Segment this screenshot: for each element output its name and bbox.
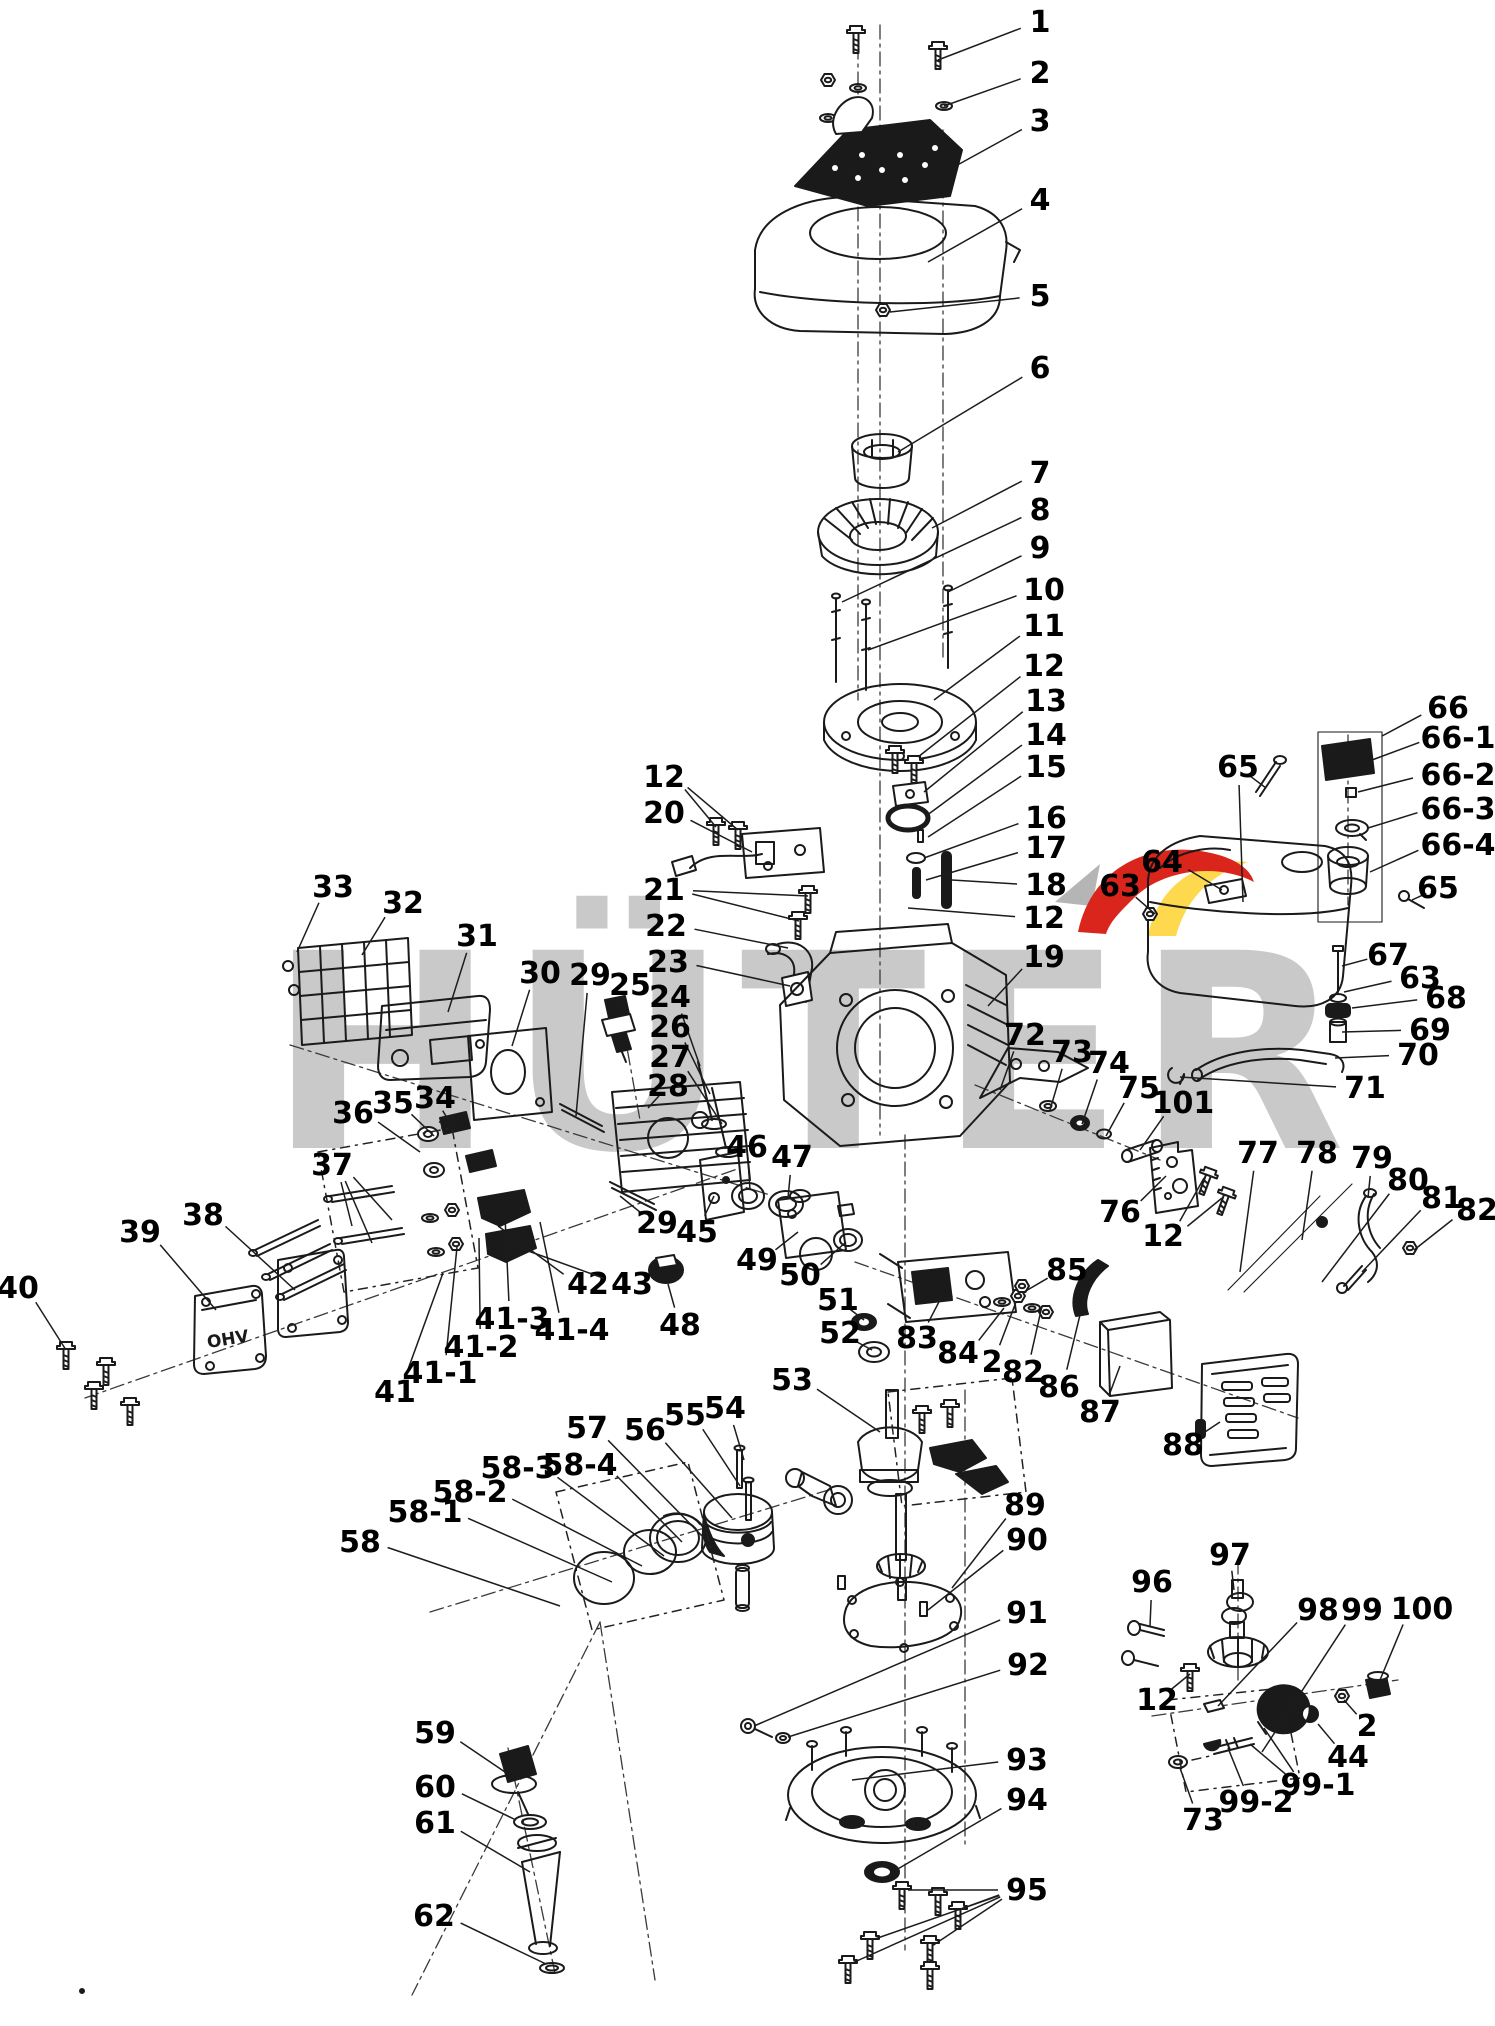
flywheel-nut bbox=[876, 304, 890, 316]
leader-line-95 bbox=[850, 1897, 1000, 1964]
connecting-rod bbox=[786, 1469, 852, 1514]
leader-line-66-1 bbox=[1372, 742, 1419, 760]
callout-82: 82 bbox=[1456, 1193, 1495, 1228]
callout-17: 17 bbox=[1025, 831, 1067, 866]
callout-46: 46 bbox=[726, 1130, 768, 1165]
flywheel-fan bbox=[818, 499, 938, 574]
leader-line-56 bbox=[665, 1443, 732, 1518]
callout-22: 22 bbox=[645, 909, 687, 944]
leader-line-17 bbox=[926, 853, 1018, 880]
callout-34: 34 bbox=[414, 1081, 456, 1116]
ignition-coil-bracket bbox=[672, 828, 824, 878]
callout-51: 51 bbox=[817, 1283, 859, 1318]
leader-line-6 bbox=[898, 377, 1022, 452]
callout-64: 64 bbox=[1141, 845, 1183, 880]
callout-14: 14 bbox=[1025, 718, 1067, 753]
callout-95: 95 bbox=[1006, 1873, 1048, 1908]
leader-line-100 bbox=[1380, 1624, 1403, 1680]
callout-2: 2 bbox=[982, 1345, 1003, 1380]
callout-70: 70 bbox=[1397, 1038, 1439, 1073]
leader-line-14 bbox=[926, 745, 1022, 816]
callout-53: 53 bbox=[771, 1363, 813, 1398]
callout-101: 101 bbox=[1152, 1086, 1215, 1121]
leader-line-40 bbox=[36, 1302, 66, 1350]
leader-line-73 bbox=[1180, 1768, 1193, 1804]
callout-99: 99 bbox=[1341, 1593, 1383, 1628]
callout-12: 12 bbox=[1136, 1683, 1178, 1718]
callout-90: 90 bbox=[1006, 1523, 1048, 1558]
callout-56: 56 bbox=[624, 1413, 666, 1448]
callout-86: 86 bbox=[1038, 1370, 1080, 1405]
callout-62: 62 bbox=[413, 1899, 455, 1934]
case-bolt-washer bbox=[741, 1719, 790, 1743]
callout-97: 97 bbox=[1209, 1538, 1251, 1573]
callout-11: 11 bbox=[1023, 609, 1065, 644]
callout-35: 35 bbox=[372, 1086, 414, 1121]
callout-12: 12 bbox=[1023, 649, 1065, 684]
callout-21: 21 bbox=[643, 873, 685, 908]
leader-line-58 bbox=[388, 1547, 560, 1606]
rocker-subassembly-box bbox=[888, 1378, 1026, 1506]
callout-61: 61 bbox=[414, 1806, 456, 1841]
callout-77: 77 bbox=[1237, 1136, 1279, 1171]
leader-line-48 bbox=[668, 1284, 675, 1308]
callout-89: 89 bbox=[1004, 1488, 1046, 1523]
callout-84: 84 bbox=[937, 1336, 979, 1371]
callout-66-2: 66-2 bbox=[1420, 758, 1495, 793]
exploded-parts-diagram-page: HÜTER bbox=[0, 0, 1495, 2026]
callout-3: 3 bbox=[1030, 104, 1051, 139]
callout-91: 91 bbox=[1006, 1596, 1048, 1631]
leader-line-92 bbox=[788, 1670, 1000, 1737]
carb-gasket bbox=[834, 1229, 862, 1251]
callout-78: 78 bbox=[1296, 1136, 1338, 1171]
callout-50: 50 bbox=[779, 1258, 821, 1293]
head-stud-bolts bbox=[249, 1220, 346, 1300]
leader-line-58-1 bbox=[468, 1518, 612, 1582]
callout-65: 65 bbox=[1417, 871, 1459, 906]
leader-line-99-1 bbox=[1264, 1728, 1294, 1772]
callout-32: 32 bbox=[382, 886, 424, 921]
leader-line-96 bbox=[1150, 1600, 1151, 1626]
callout-5: 5 bbox=[1030, 279, 1051, 314]
callout-60: 60 bbox=[414, 1770, 456, 1805]
leader-line-1 bbox=[938, 28, 1021, 60]
callout-8: 8 bbox=[1030, 493, 1051, 528]
callout-54: 54 bbox=[704, 1391, 746, 1426]
leader-line-54 bbox=[734, 1425, 744, 1460]
callout-13: 13 bbox=[1025, 684, 1067, 719]
leader-line-3 bbox=[952, 129, 1022, 168]
callout-12: 12 bbox=[1023, 901, 1065, 936]
piston-rings-box bbox=[556, 1462, 724, 1630]
leader-line-58-2 bbox=[512, 1499, 642, 1566]
callout-76: 76 bbox=[1099, 1195, 1141, 1230]
leader-line-5 bbox=[890, 298, 1020, 312]
callout-40: 40 bbox=[0, 1271, 39, 1306]
leader-line-21 bbox=[693, 891, 808, 896]
callout-83: 83 bbox=[896, 1321, 938, 1356]
camshaft bbox=[1208, 1580, 1268, 1667]
callout-100: 100 bbox=[1391, 1592, 1454, 1627]
callout-99-2: 99-2 bbox=[1218, 1785, 1293, 1820]
oil-seal-bottom bbox=[865, 1862, 899, 1882]
cylinder-studs-long bbox=[832, 586, 952, 691]
callout-36: 36 bbox=[332, 1096, 374, 1131]
piston-pin bbox=[736, 1565, 749, 1611]
callout-15: 15 bbox=[1025, 750, 1067, 785]
leader-line-66-3 bbox=[1368, 813, 1418, 828]
leader-line-99-2 bbox=[1228, 1748, 1243, 1786]
leader-line-2 bbox=[1344, 1700, 1357, 1714]
callout-58-1: 58-1 bbox=[387, 1495, 462, 1530]
callout-49: 49 bbox=[736, 1243, 778, 1278]
callout-28: 28 bbox=[647, 1069, 689, 1104]
oil-filler-assembly bbox=[492, 1746, 564, 1973]
callout-38: 38 bbox=[182, 1198, 224, 1233]
piston bbox=[702, 1494, 774, 1564]
leader-line-84 bbox=[979, 1308, 1004, 1340]
callout-45: 45 bbox=[676, 1215, 718, 1250]
callout-71: 71 bbox=[1344, 1071, 1386, 1106]
callout-20: 20 bbox=[643, 796, 685, 831]
leader-line-91 bbox=[754, 1620, 1000, 1726]
callout-66-3: 66-3 bbox=[1420, 792, 1495, 827]
leader-line-4 bbox=[928, 209, 1022, 262]
leader-line-58-4 bbox=[617, 1476, 682, 1542]
leader-line-82 bbox=[1414, 1220, 1453, 1250]
callout-52: 52 bbox=[819, 1316, 861, 1351]
air-filter-element bbox=[1100, 1312, 1172, 1396]
callout-23: 23 bbox=[647, 945, 689, 980]
crankcase-cover bbox=[786, 1727, 980, 1843]
leader-line-59 bbox=[460, 1742, 505, 1772]
callout-47: 47 bbox=[771, 1140, 813, 1175]
callout-31: 31 bbox=[456, 919, 498, 954]
callout-98: 98 bbox=[1297, 1593, 1339, 1628]
callout-29: 29 bbox=[636, 1206, 678, 1241]
coil-bolt bbox=[707, 818, 725, 845]
callout-25: 25 bbox=[609, 968, 651, 1003]
leader-line-41-4 bbox=[540, 1222, 559, 1313]
callout-18: 18 bbox=[1025, 868, 1067, 903]
leader-line-66-2 bbox=[1358, 778, 1413, 792]
callout-33: 33 bbox=[312, 870, 354, 905]
callout-94: 94 bbox=[1006, 1783, 1048, 1818]
valve-cover: OHV bbox=[194, 1286, 266, 1374]
air-cleaner-top-cover bbox=[795, 97, 962, 206]
leader-line-7 bbox=[932, 481, 1022, 528]
callout-92: 92 bbox=[1007, 1648, 1049, 1683]
leader-line-16 bbox=[924, 824, 1018, 858]
leader-line-94 bbox=[896, 1808, 1001, 1870]
callout-59: 59 bbox=[414, 1716, 456, 1751]
leader-line-10 bbox=[868, 596, 1017, 650]
leader-line-90 bbox=[928, 1550, 1003, 1610]
leader-line-60 bbox=[462, 1794, 516, 1820]
leader-line-39 bbox=[160, 1245, 216, 1310]
callout-55: 55 bbox=[664, 1398, 706, 1433]
callout-1: 1 bbox=[1030, 5, 1051, 40]
callout-48: 48 bbox=[659, 1308, 701, 1343]
leader-line-87 bbox=[1109, 1366, 1120, 1395]
callout-73: 73 bbox=[1051, 1035, 1093, 1070]
callout-7: 7 bbox=[1030, 456, 1051, 491]
crankshaft bbox=[858, 1390, 925, 1600]
crankcase-gasket bbox=[838, 1576, 961, 1652]
air-cleaner-cover bbox=[1196, 1354, 1298, 1466]
leader-line-55 bbox=[703, 1429, 740, 1486]
leader-line-89 bbox=[952, 1519, 1006, 1588]
callout-10: 10 bbox=[1023, 573, 1065, 608]
callout-41-4: 41-4 bbox=[534, 1313, 609, 1348]
callout-43: 43 bbox=[611, 1267, 653, 1302]
callout-63: 63 bbox=[1099, 869, 1141, 904]
leader-line-2 bbox=[944, 79, 1021, 106]
valve-cover-bolts bbox=[57, 1342, 139, 1425]
leader-line-68 bbox=[1352, 1000, 1417, 1008]
callout-30: 30 bbox=[519, 956, 561, 991]
callout-87: 87 bbox=[1079, 1395, 1121, 1430]
oil-filler-plug bbox=[649, 1255, 683, 1283]
callout-57: 57 bbox=[566, 1411, 608, 1446]
callout-9: 9 bbox=[1030, 531, 1051, 566]
callout-85: 85 bbox=[1046, 1253, 1088, 1288]
leader-line-53 bbox=[817, 1389, 880, 1432]
callout-39: 39 bbox=[119, 1215, 161, 1250]
small-parts-column bbox=[888, 782, 951, 908]
magneto-base bbox=[824, 684, 976, 771]
leader-line-13 bbox=[924, 712, 1023, 792]
valve-cover-gasket bbox=[278, 1250, 348, 1337]
cam-bolts bbox=[1122, 1621, 1199, 1691]
page-mark bbox=[80, 1989, 84, 1993]
leader-line-9 bbox=[948, 556, 1022, 592]
callout-66-4: 66-4 bbox=[1420, 828, 1495, 863]
callout-68: 68 bbox=[1425, 981, 1467, 1016]
callout-73: 73 bbox=[1182, 1803, 1224, 1838]
callout-2: 2 bbox=[1030, 56, 1051, 91]
exploded-parts-diagram: HÜTER bbox=[0, 0, 1495, 2026]
leader-line-82 bbox=[1031, 1306, 1042, 1355]
callout-12: 12 bbox=[643, 760, 685, 795]
callout-72: 72 bbox=[1004, 1018, 1046, 1053]
callout-88: 88 bbox=[1162, 1428, 1204, 1463]
leader-line-61 bbox=[461, 1831, 530, 1872]
callout-65: 65 bbox=[1217, 750, 1259, 785]
leader-line-49 bbox=[775, 1232, 798, 1250]
leader-line-66-4 bbox=[1370, 850, 1418, 872]
leader-line-11 bbox=[934, 636, 1020, 700]
leader-line-18 bbox=[952, 880, 1017, 884]
callout-4: 4 bbox=[1030, 183, 1051, 218]
callout-19: 19 bbox=[1023, 940, 1065, 975]
callout-96: 96 bbox=[1131, 1565, 1173, 1600]
callout-58: 58 bbox=[339, 1525, 381, 1560]
leader-line-79 bbox=[1368, 1176, 1370, 1198]
air-cleaner-base bbox=[880, 1252, 1053, 1322]
leader-line-58-3 bbox=[557, 1477, 664, 1556]
starter-cup bbox=[852, 434, 912, 488]
callout-93: 93 bbox=[1006, 1743, 1048, 1778]
valve-cover-label: OHV bbox=[206, 1327, 251, 1353]
leader-line-66 bbox=[1382, 715, 1421, 736]
leader-line-2 bbox=[1000, 1302, 1016, 1345]
callout-66-1: 66-1 bbox=[1420, 721, 1495, 756]
callout-29: 29 bbox=[569, 958, 611, 993]
callout-2: 2 bbox=[1357, 1709, 1378, 1744]
callout-37: 37 bbox=[311, 1148, 353, 1183]
callout-12: 12 bbox=[1142, 1219, 1184, 1254]
callout-6: 6 bbox=[1030, 351, 1051, 386]
leader-line-8 bbox=[842, 518, 1021, 602]
